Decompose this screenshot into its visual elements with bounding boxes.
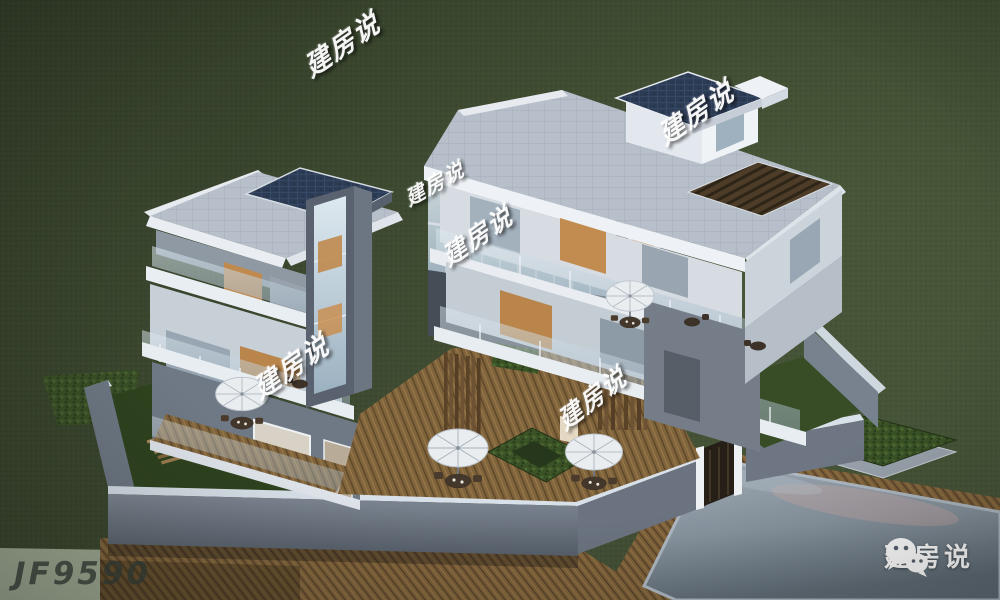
brand-badge: 建房说 [884,537,974,574]
stair-tower [306,186,372,408]
wechat-icon [884,537,930,577]
plan-code: JF9590 [14,556,151,592]
villa-render-scene: 建房说 建房说 建房说 建房说 建房说 建房说 JF9590 建房说 [0,0,1000,600]
villa-illustration [0,0,1000,600]
